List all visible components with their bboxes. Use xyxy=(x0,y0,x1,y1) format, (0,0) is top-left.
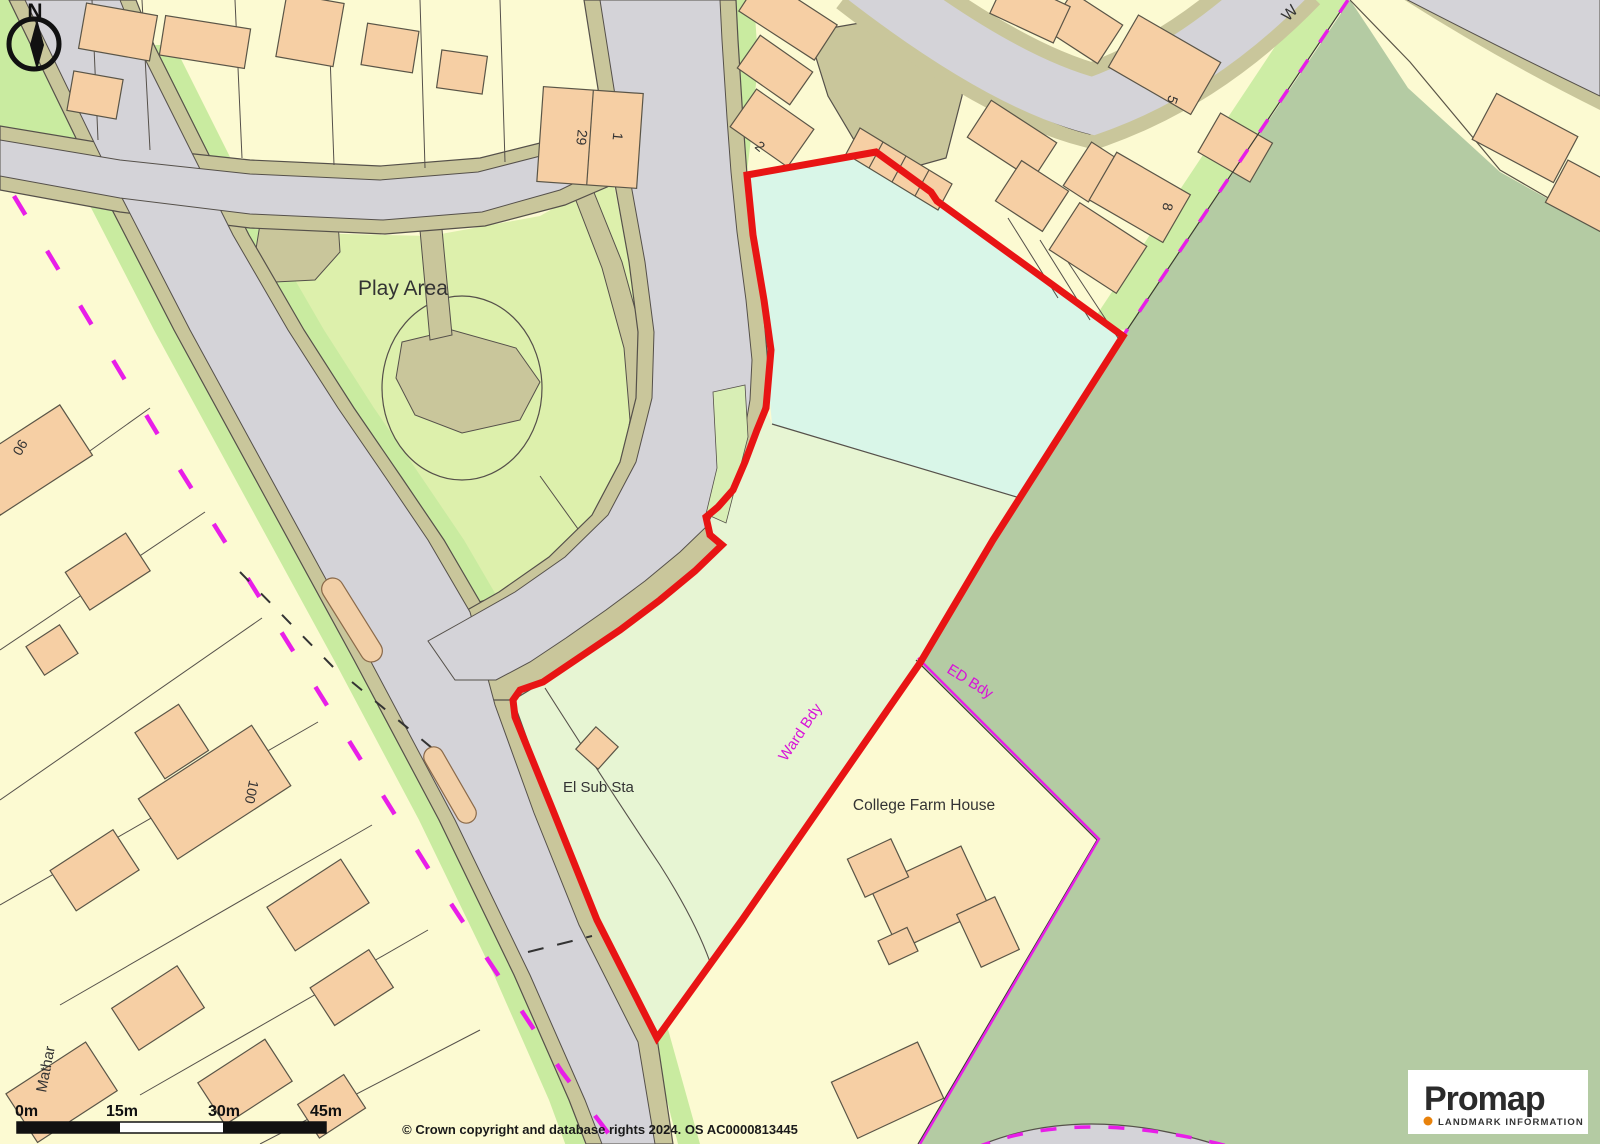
promap-logo: Promap LANDMARK INFORMATION xyxy=(1408,1070,1588,1134)
logo-tagline-text: LANDMARK INFORMATION xyxy=(1438,1117,1584,1128)
scale-bar-segment-2 xyxy=(223,1122,326,1133)
house-number-29: 29 xyxy=(573,129,591,146)
el-sub-sta-label: El Sub Sta xyxy=(563,779,635,796)
map-stage: Play Area El Sub Sta College Farm House … xyxy=(0,0,1600,1144)
college-farm-house-label: College Farm House xyxy=(853,797,995,814)
scale-tick-45: 45m xyxy=(310,1103,342,1120)
play-area-label: Play Area xyxy=(358,277,448,300)
building xyxy=(276,0,344,67)
building xyxy=(437,50,488,94)
logo-brand-text: Promap xyxy=(1424,1080,1545,1118)
building xyxy=(361,23,419,73)
compass-north-label: N xyxy=(27,0,42,23)
scale-tick-15: 15m xyxy=(106,1103,138,1120)
logo-dot-icon xyxy=(1424,1117,1433,1126)
copyright-attribution: © Crown copyright and database rights 20… xyxy=(402,1122,798,1137)
building xyxy=(67,71,123,119)
scale-bar-segment-1 xyxy=(17,1122,120,1133)
map-canvas[interactable]: Play Area El Sub Sta College Farm House … xyxy=(0,0,1600,1144)
scale-tick-30: 30m xyxy=(208,1103,240,1120)
scale-tick-0: 0m xyxy=(15,1103,38,1120)
